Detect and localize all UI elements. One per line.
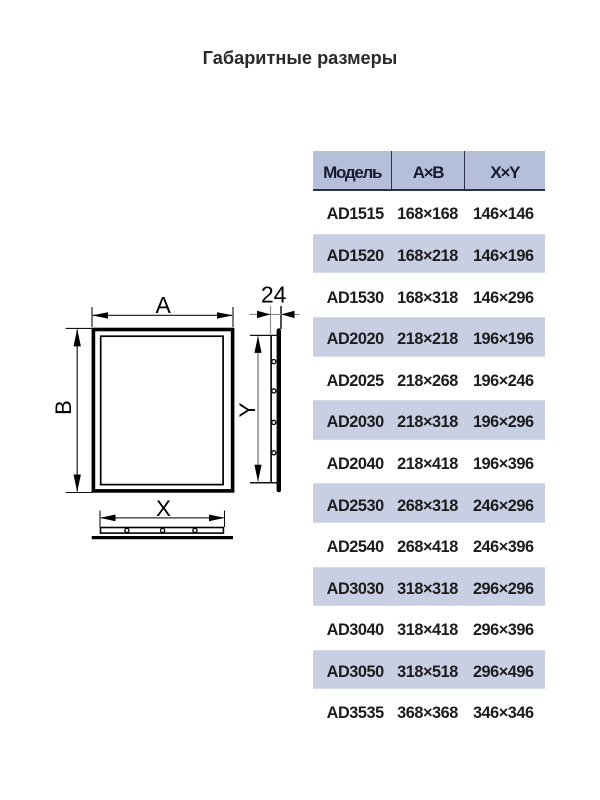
svg-text:24: 24 <box>261 282 287 308</box>
svg-text:X: X <box>156 496 171 521</box>
svg-text:Y: Y <box>235 402 260 417</box>
svg-text:B: B <box>51 400 76 415</box>
svg-text:A: A <box>156 292 172 318</box>
